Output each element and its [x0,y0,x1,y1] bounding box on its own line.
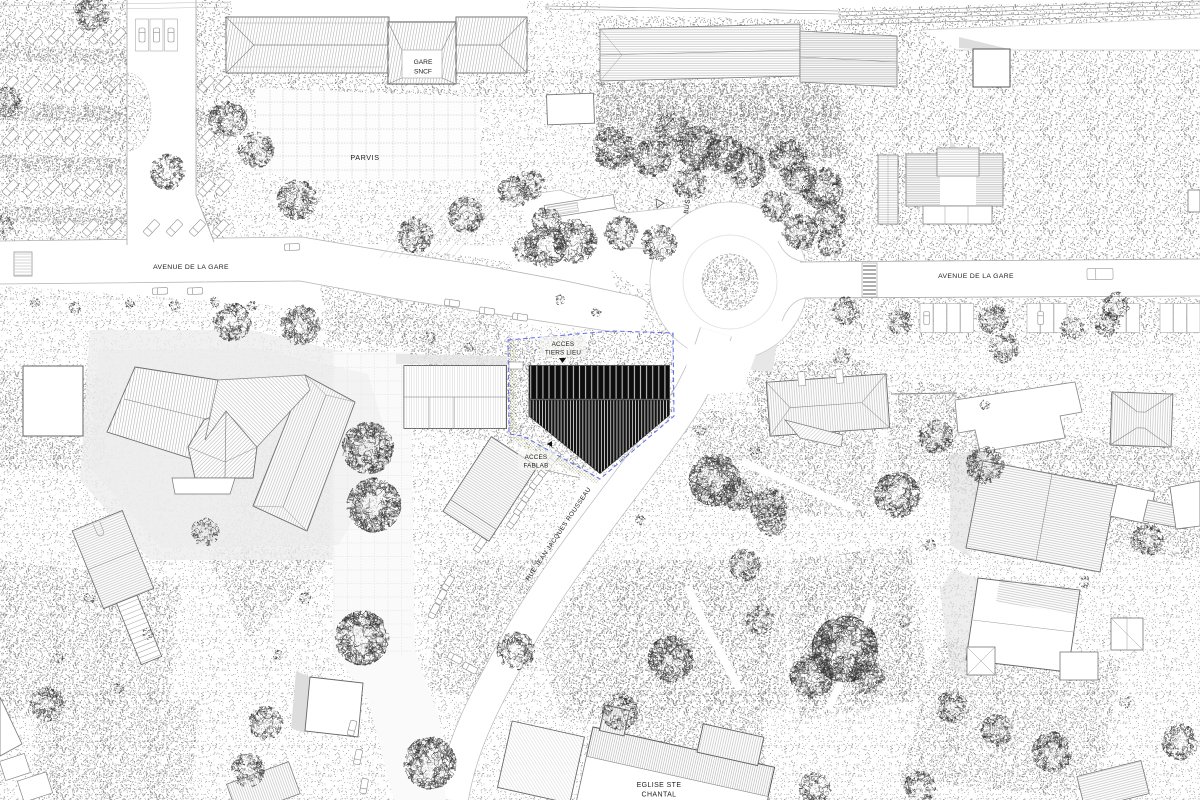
svg-text:PARVIS: PARVIS [350,153,379,162]
svg-text:EGLISE STE: EGLISE STE [637,782,682,789]
svg-text:FABLAB: FABLAB [523,463,548,470]
svg-text:ACCES: ACCES [552,341,575,348]
svg-text:CHANTAL: CHANTAL [642,792,677,799]
svg-text:AVENUE DE LA GARE: AVENUE DE LA GARE [938,273,1014,280]
svg-text:AVENUE DE LA GARE: AVENUE DE LA GARE [153,264,229,271]
svg-text:ACCES: ACCES [525,454,548,461]
svg-text:GARE: GARE [414,59,433,66]
svg-text:SNCF: SNCF [414,69,432,76]
svg-text:TIERS LIEU: TIERS LIEU [545,350,582,357]
